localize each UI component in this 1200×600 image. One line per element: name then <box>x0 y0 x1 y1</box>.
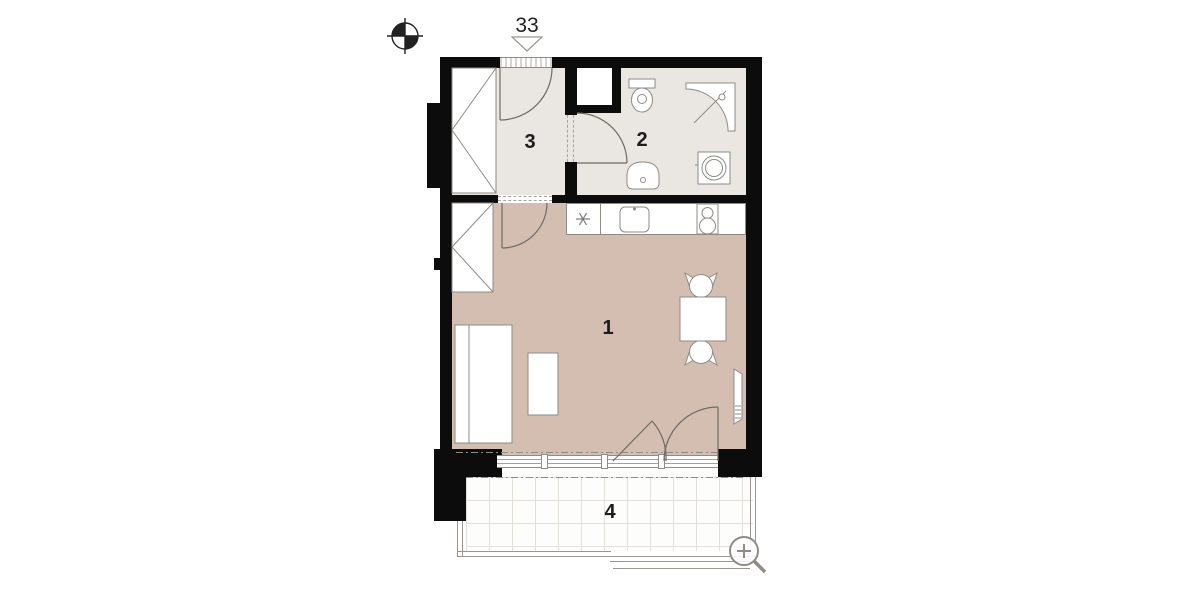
wall-right <box>746 57 762 449</box>
wall-axis-dash-line <box>456 452 718 453</box>
balcony-edge-dash-line <box>466 477 746 478</box>
floor-plan-viewer: 33 1 2 <box>0 0 1200 600</box>
counter-divider <box>698 204 699 234</box>
wall-left-pier <box>427 103 440 188</box>
entrance-threshold <box>500 57 552 68</box>
hall-bath-threshold <box>565 115 577 162</box>
window-mullion <box>658 454 665 469</box>
balcony-railing-right <box>750 477 756 545</box>
room-label-balcony: 4 <box>604 501 615 523</box>
compass-icon <box>387 18 423 54</box>
kitchen-counter <box>566 203 746 235</box>
counter-divider <box>600 204 601 234</box>
window-mullion <box>541 454 548 469</box>
balcony-slab-line <box>613 568 750 569</box>
counter-divider <box>717 204 718 234</box>
wall-hall-living-left <box>440 195 498 203</box>
wall-bath-living <box>552 195 746 203</box>
wall-left <box>440 57 452 449</box>
hall-living-threshold <box>498 195 552 203</box>
shaft-wall-bottom <box>565 105 621 113</box>
hall-floor <box>452 68 565 195</box>
zoom-in-icon[interactable] <box>730 537 765 572</box>
room-label-bathroom: 2 <box>636 129 647 151</box>
room-label-hall: 3 <box>524 131 535 153</box>
living-room-floor <box>452 203 746 455</box>
wall-left-notch <box>434 258 441 270</box>
installation-shaft <box>577 68 612 105</box>
window-mullion <box>601 454 608 469</box>
unit-number-label: 33 <box>515 15 538 37</box>
wall-bottom-right <box>718 449 762 477</box>
balcony-railing-bottom-left <box>457 551 611 557</box>
wall-top-right <box>552 57 762 68</box>
room-label-living: 1 <box>602 317 613 339</box>
wall-bottom-left-a <box>434 449 502 477</box>
wall-bottom-left-b <box>434 477 466 521</box>
entrance-arrow-icon <box>512 37 542 51</box>
